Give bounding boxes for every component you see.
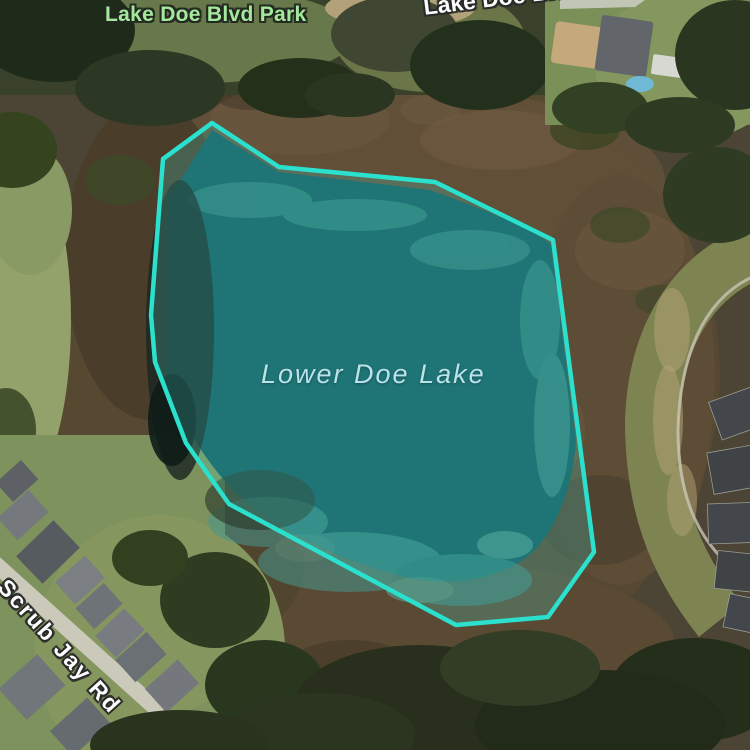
park-label[interactable]: Lake Doe Blvd Park <box>105 3 307 27</box>
map-canvas[interactable]: Lake Doe Blvd Park Lake Doe Blvd Lower D… <box>0 0 750 750</box>
lake-name-label[interactable]: Lower Doe Lake <box>261 359 486 390</box>
